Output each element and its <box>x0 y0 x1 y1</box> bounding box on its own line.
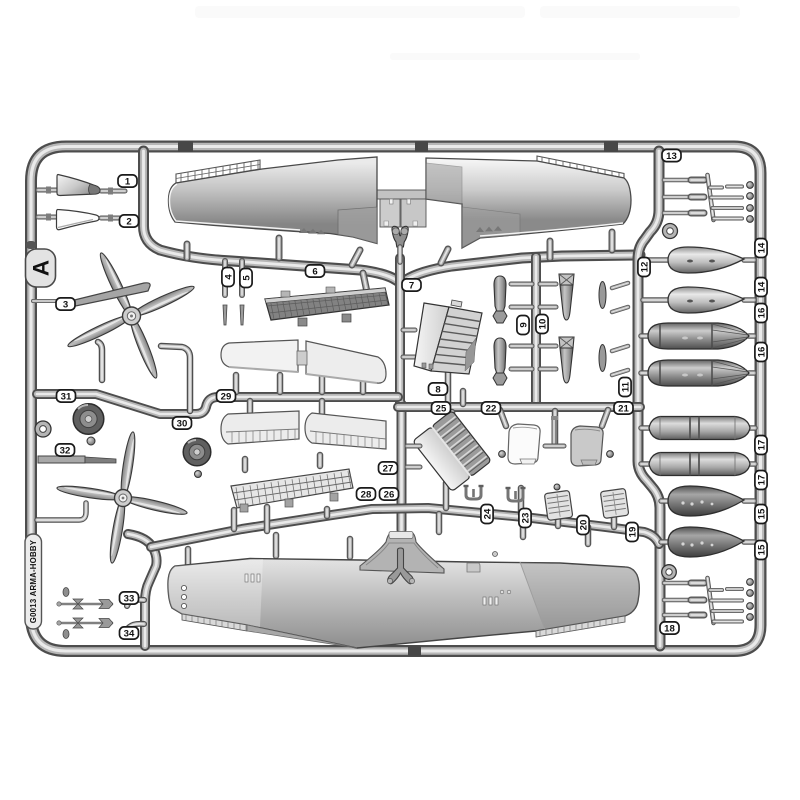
svg-text:23: 23 <box>520 513 531 524</box>
svg-text:5: 5 <box>241 275 252 281</box>
svg-text:2: 2 <box>126 216 131 227</box>
svg-text:25: 25 <box>436 403 447 414</box>
svg-text:29: 29 <box>221 391 232 402</box>
svg-text:1: 1 <box>125 176 131 187</box>
svg-text:8: 8 <box>435 384 441 395</box>
svg-text:10: 10 <box>537 319 548 330</box>
svg-text:11: 11 <box>620 381 631 392</box>
svg-text:4: 4 <box>223 274 234 280</box>
svg-text:13: 13 <box>666 151 677 162</box>
svg-text:16: 16 <box>756 347 767 358</box>
svg-text:27: 27 <box>383 463 394 474</box>
svg-text:30: 30 <box>177 418 188 429</box>
svg-text:17: 17 <box>756 440 767 451</box>
svg-text:9: 9 <box>518 322 529 327</box>
svg-text:16: 16 <box>756 308 767 319</box>
svg-text:14: 14 <box>756 242 767 253</box>
svg-text:33: 33 <box>124 593 135 604</box>
svg-text:15: 15 <box>756 544 767 555</box>
svg-text:19: 19 <box>627 527 638 538</box>
svg-text:22: 22 <box>486 403 497 414</box>
svg-text:28: 28 <box>361 489 372 500</box>
svg-text:26: 26 <box>384 489 395 500</box>
svg-text:32: 32 <box>60 445 71 456</box>
svg-text:18: 18 <box>664 623 675 634</box>
svg-text:G0013 ARMA-HOBBY: G0013 ARMA-HOBBY <box>29 539 38 623</box>
svg-text:A: A <box>29 260 54 276</box>
svg-text:3: 3 <box>63 299 68 310</box>
svg-text:17: 17 <box>756 475 767 486</box>
svg-text:34: 34 <box>124 628 135 639</box>
svg-text:15: 15 <box>756 508 767 519</box>
svg-text:24: 24 <box>482 508 493 519</box>
svg-text:20: 20 <box>578 520 589 531</box>
svg-text:31: 31 <box>61 391 72 402</box>
svg-text:12: 12 <box>639 262 650 273</box>
svg-text:14: 14 <box>756 281 767 292</box>
svg-text:21: 21 <box>618 403 629 414</box>
svg-text:7: 7 <box>409 280 414 291</box>
svg-text:6: 6 <box>312 266 317 277</box>
